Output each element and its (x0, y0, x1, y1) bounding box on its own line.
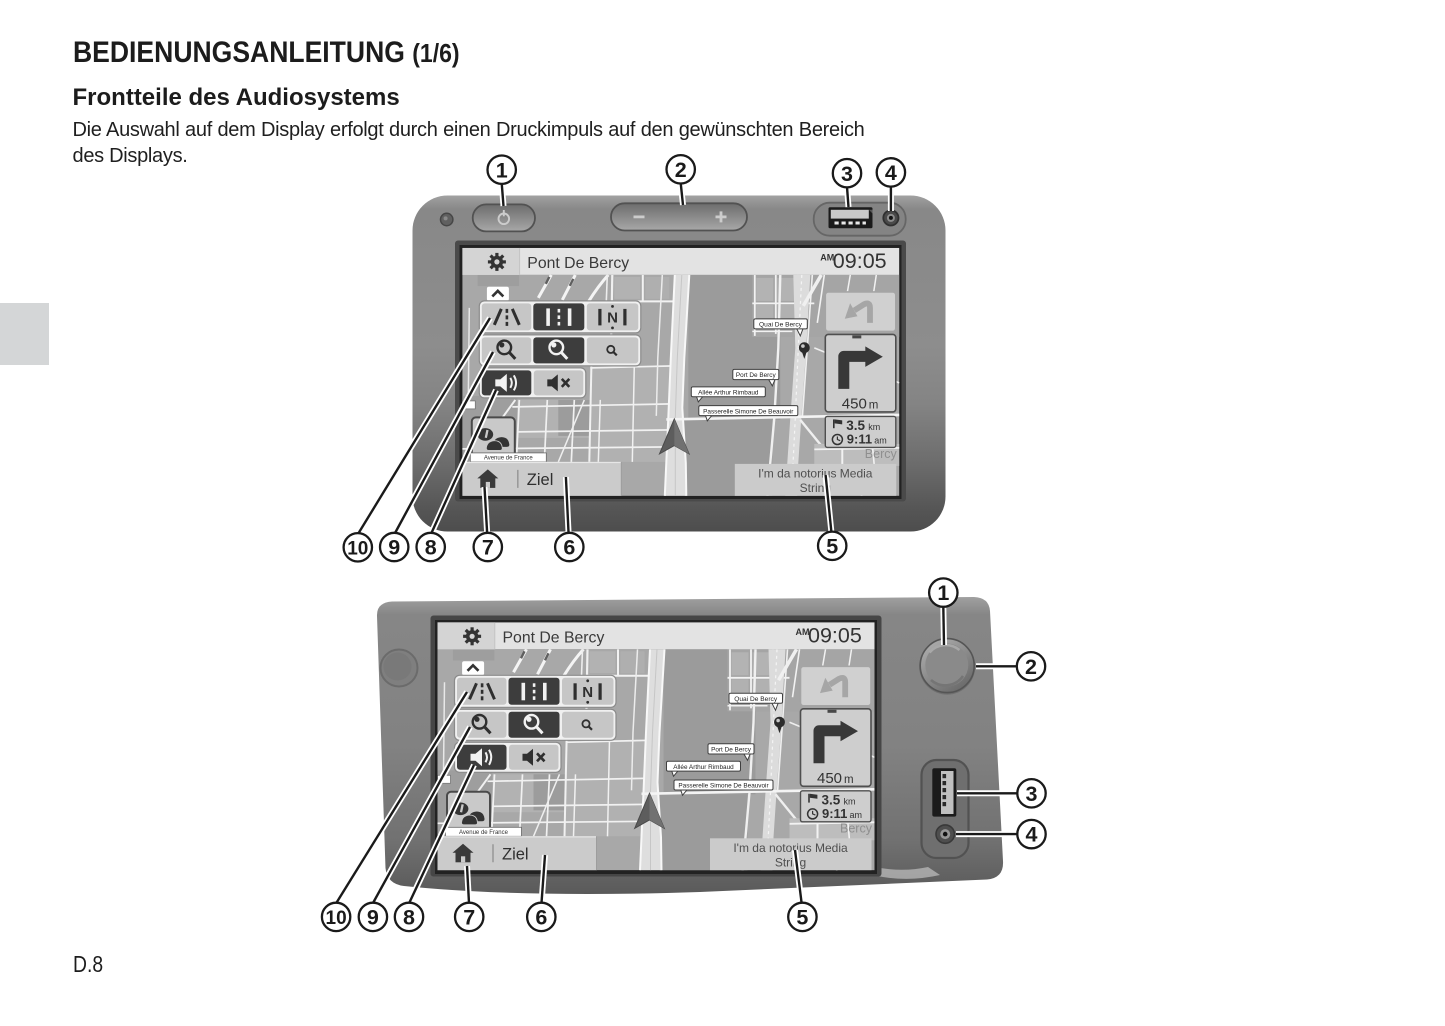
svg-text:9: 9 (367, 906, 379, 930)
svg-text:10: 10 (347, 538, 368, 559)
svg-text:10: 10 (326, 908, 347, 929)
svg-text:8: 8 (425, 536, 437, 560)
svg-text:5: 5 (826, 534, 838, 558)
svg-text:4: 4 (1026, 823, 1038, 847)
svg-text:6: 6 (535, 906, 547, 930)
svg-text:7: 7 (482, 536, 494, 560)
svg-text:5: 5 (796, 906, 808, 930)
svg-text:1: 1 (496, 158, 508, 182)
svg-text:3: 3 (841, 162, 853, 186)
svg-text:4: 4 (885, 161, 897, 185)
svg-text:1: 1 (937, 581, 949, 605)
svg-text:8: 8 (403, 906, 415, 930)
svg-text:6: 6 (563, 536, 575, 560)
svg-text:9: 9 (388, 536, 400, 560)
svg-text:2: 2 (1025, 655, 1037, 679)
svg-text:7: 7 (463, 906, 475, 930)
svg-text:3: 3 (1026, 782, 1038, 806)
svg-text:2: 2 (675, 158, 687, 182)
